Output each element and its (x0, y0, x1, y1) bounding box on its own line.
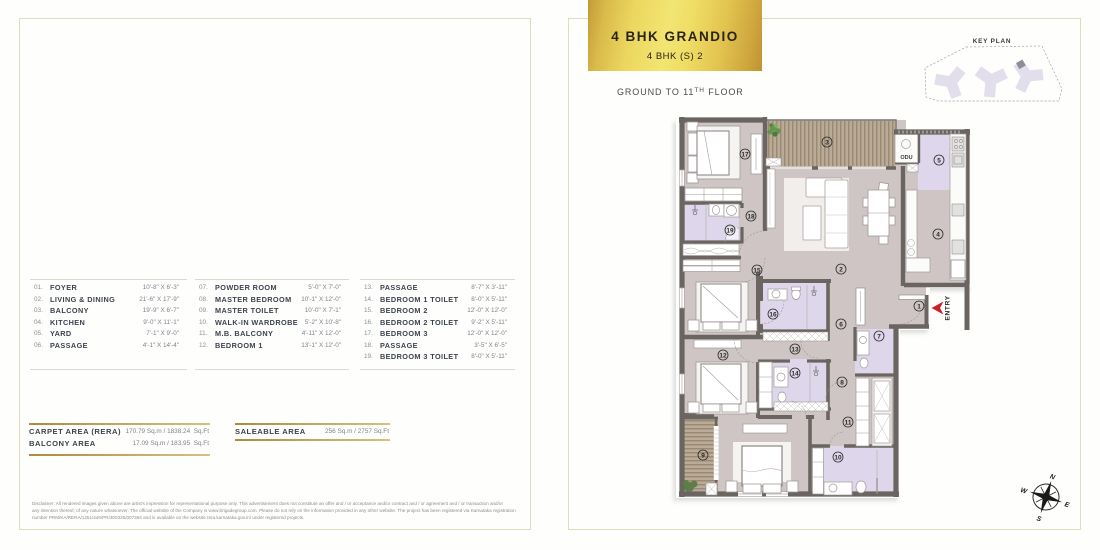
svg-text:18: 18 (747, 213, 755, 220)
svg-text:ENTRY: ENTRY (945, 295, 952, 320)
svg-text:6: 6 (839, 321, 843, 328)
svg-text:8: 8 (840, 379, 844, 386)
svg-text:S: S (1035, 515, 1042, 523)
svg-text:10: 10 (834, 454, 842, 461)
svg-text:E: E (1063, 501, 1070, 509)
svg-text:17: 17 (741, 151, 749, 158)
svg-text:7: 7 (877, 333, 881, 340)
svg-text:2: 2 (839, 266, 843, 273)
svg-text:14: 14 (791, 370, 799, 377)
svg-text:16: 16 (769, 311, 777, 318)
svg-text:W: W (1019, 487, 1028, 496)
svg-text:1: 1 (917, 303, 921, 310)
svg-text:5: 5 (937, 157, 941, 164)
svg-text:N: N (1049, 473, 1057, 482)
svg-text:3: 3 (825, 139, 829, 146)
svg-text:9: 9 (701, 452, 705, 459)
svg-text:12: 12 (719, 352, 727, 359)
svg-text:11: 11 (845, 419, 852, 426)
svg-text:4: 4 (936, 231, 940, 238)
svg-text:13: 13 (791, 346, 799, 353)
svg-text:15: 15 (753, 267, 761, 274)
svg-text:ODU: ODU (900, 155, 912, 161)
svg-text:KEY PLAN: KEY PLAN (973, 38, 1012, 45)
svg-text:19: 19 (726, 227, 734, 234)
